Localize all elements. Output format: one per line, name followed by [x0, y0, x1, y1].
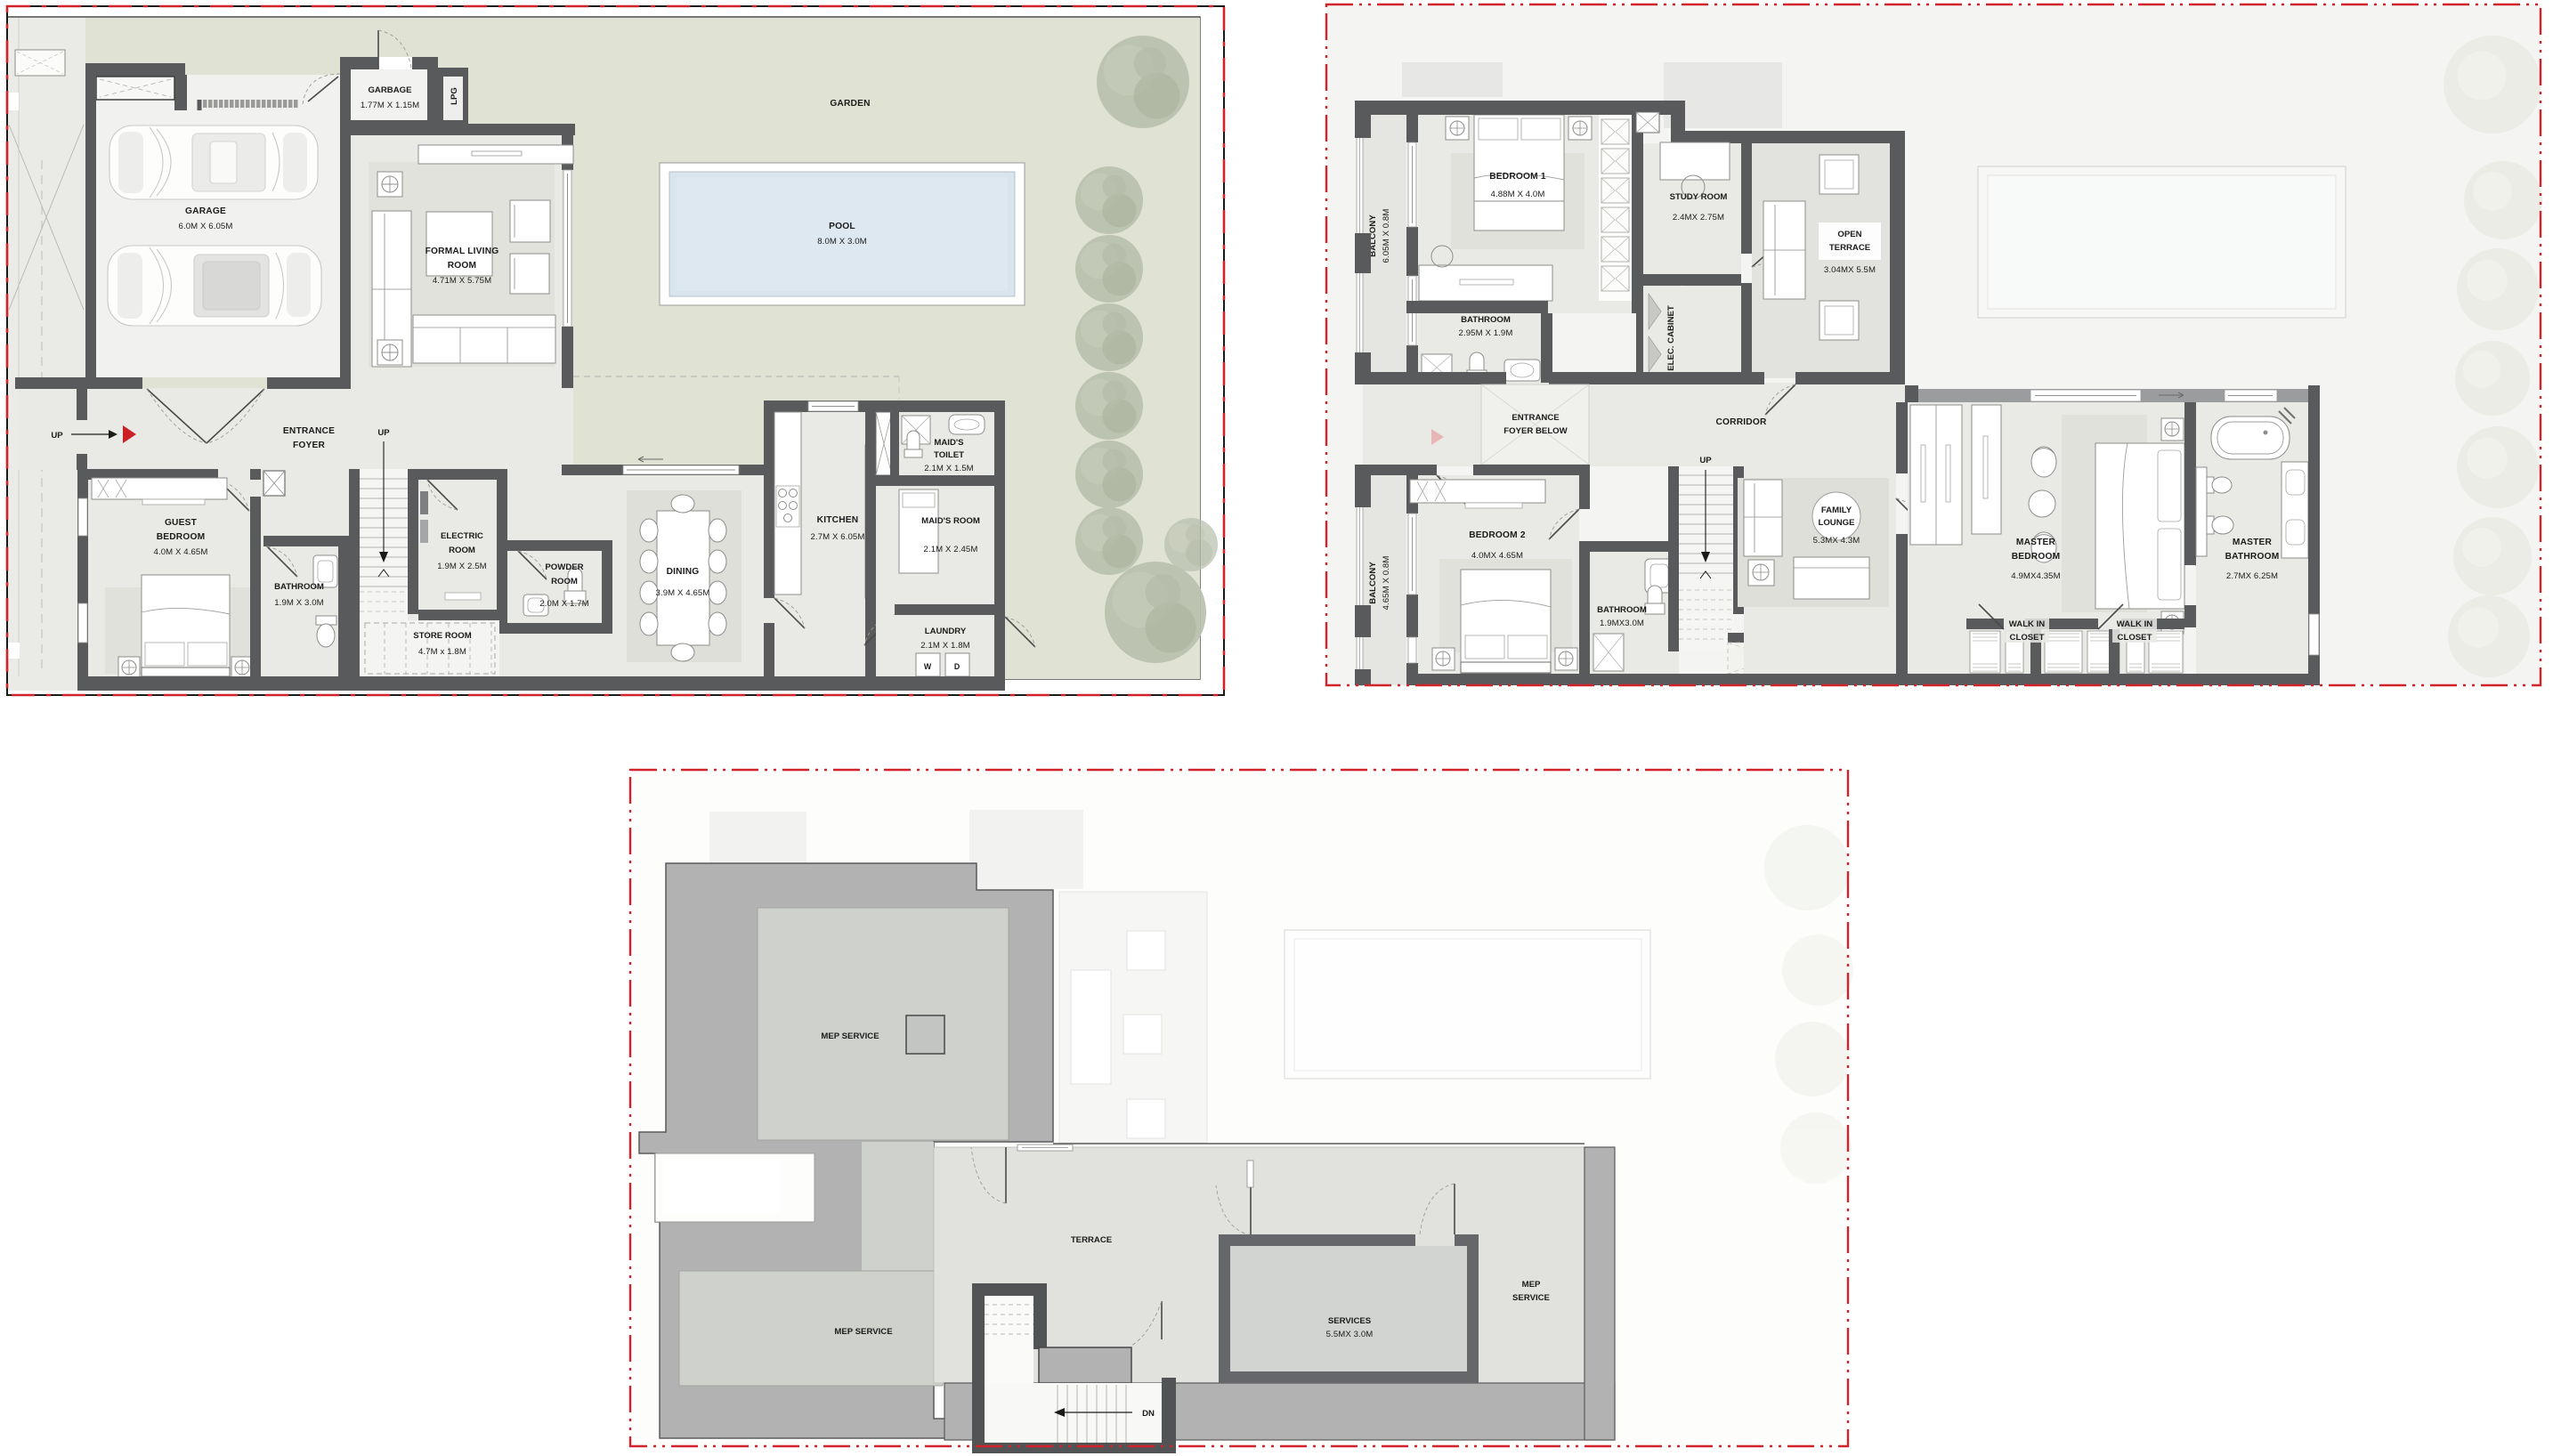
- svg-text:POOL: POOL: [829, 222, 855, 231]
- svg-text:4.7M x 1.8M: 4.7M x 1.8M: [418, 647, 466, 657]
- svg-text:BATHROOM: BATHROOM: [274, 582, 324, 592]
- svg-text:2.7M X 6.05M: 2.7M X 6.05M: [811, 532, 865, 542]
- svg-text:CLOSET: CLOSET: [2118, 633, 2152, 643]
- svg-text:MASTER: MASTER: [2233, 538, 2273, 547]
- svg-text:1.77M X 1.15M: 1.77M X 1.15M: [361, 101, 419, 110]
- svg-text:2.95M X 1.9M: 2.95M X 1.9M: [1459, 328, 1513, 338]
- svg-text:ELECTRIC: ELECTRIC: [441, 531, 483, 541]
- svg-text:WALK IN: WALK IN: [2009, 619, 2046, 629]
- svg-text:4.88M X 4.0M: 4.88M X 4.0M: [1491, 190, 1545, 199]
- svg-text:SERVICES: SERVICES: [1328, 1316, 1372, 1326]
- svg-text:FAMILY: FAMILY: [1821, 506, 1852, 515]
- svg-text:MEP SERVICE: MEP SERVICE: [834, 1327, 893, 1337]
- svg-text:4.0M X 4.65M: 4.0M X 4.65M: [154, 547, 208, 557]
- svg-text:ROOM: ROOM: [449, 546, 475, 555]
- svg-text:3.9M X 4.65M: 3.9M X 4.65M: [656, 588, 710, 598]
- svg-text:2.4MX 2.75M: 2.4MX 2.75M: [1673, 213, 1724, 222]
- svg-text:POWDER: POWDER: [545, 562, 583, 572]
- svg-text:5.3MX 4.3M: 5.3MX 4.3M: [1813, 536, 1860, 546]
- svg-text:MAID'S ROOM: MAID'S ROOM: [921, 516, 980, 526]
- svg-text:TERRACE: TERRACE: [1071, 1235, 1113, 1245]
- svg-text:STORE ROOM: STORE ROOM: [413, 631, 471, 641]
- svg-text:W: W: [924, 662, 932, 671]
- svg-text:DN: DN: [1142, 1409, 1155, 1419]
- svg-text:6.05M X 0.8M: 6.05M X 0.8M: [1382, 209, 1391, 263]
- svg-text:OPEN: OPEN: [1837, 230, 1861, 239]
- svg-text:1.9M X 2.5M: 1.9M X 2.5M: [437, 562, 487, 571]
- svg-text:4.0MX 4.65M: 4.0MX 4.65M: [1471, 551, 1523, 561]
- svg-text:ROOM: ROOM: [448, 261, 477, 271]
- svg-text:D: D: [954, 662, 960, 671]
- svg-text:BATHROOM: BATHROOM: [2225, 552, 2280, 562]
- svg-text:4.71M X 5.75M: 4.71M X 5.75M: [433, 276, 491, 286]
- svg-text:TOILET: TOILET: [934, 450, 964, 460]
- svg-text:5.5MX 3.0M: 5.5MX 3.0M: [1326, 1330, 1374, 1339]
- svg-text:GARBAGE: GARBAGE: [368, 85, 412, 95]
- svg-text:2.1M X 2.45M: 2.1M X 2.45M: [924, 545, 978, 554]
- svg-text:BALCONY: BALCONY: [1368, 562, 1378, 604]
- svg-text:1.9MX3.0M: 1.9MX3.0M: [1600, 619, 1644, 628]
- svg-text:BEDROOM 1: BEDROOM 1: [1489, 172, 1546, 182]
- svg-text:BEDROOM: BEDROOM: [157, 532, 206, 542]
- svg-text:UP: UP: [51, 431, 63, 441]
- svg-text:4.9MX4.35M: 4.9MX4.35M: [2011, 571, 2060, 581]
- svg-text:TERRACE: TERRACE: [1829, 243, 1871, 253]
- svg-text:UP: UP: [1699, 456, 1712, 465]
- svg-text:MAID'S: MAID'S: [934, 438, 964, 448]
- svg-text:ELEC. CABINET: ELEC. CABINET: [1666, 305, 1676, 371]
- svg-text:BATHROOM: BATHROOM: [1461, 315, 1511, 325]
- svg-text:FORMAL LIVING: FORMAL LIVING: [425, 247, 499, 256]
- svg-text:DINING: DINING: [667, 567, 700, 577]
- svg-text:ENTRANCE: ENTRANCE: [283, 426, 335, 436]
- svg-text:3.04MX 5.5M: 3.04MX 5.5M: [1824, 265, 1876, 275]
- svg-text:MEP SERVICE: MEP SERVICE: [821, 1031, 879, 1041]
- svg-text:LAUNDRY: LAUNDRY: [925, 627, 967, 636]
- svg-text:CORRIDOR: CORRIDOR: [1715, 417, 1767, 427]
- svg-text:BATHROOM: BATHROOM: [1597, 605, 1647, 615]
- svg-text:1.9M X 3.0M: 1.9M X 3.0M: [274, 598, 324, 608]
- svg-text:UP: UP: [377, 428, 390, 438]
- svg-text:8.0M X 3.0M: 8.0M X 3.0M: [817, 237, 867, 247]
- svg-text:LOUNGE: LOUNGE: [1818, 518, 1855, 528]
- svg-text:GARAGE: GARAGE: [185, 206, 226, 216]
- svg-text:LPG: LPG: [450, 87, 459, 105]
- svg-text:2.0M X 1.7M: 2.0M X 1.7M: [539, 599, 589, 609]
- svg-text:CLOSET: CLOSET: [2010, 633, 2045, 643]
- svg-text:ENTRANCE: ENTRANCE: [1512, 413, 1560, 423]
- svg-text:FOYER: FOYER: [293, 441, 326, 450]
- svg-text:STUDY ROOM: STUDY ROOM: [1670, 192, 1728, 202]
- svg-text:FOYER BELOW: FOYER BELOW: [1503, 426, 1568, 436]
- svg-text:6.0M X 6.05M: 6.0M X 6.05M: [179, 222, 233, 231]
- svg-text:2.1M X 1.8M: 2.1M X 1.8M: [920, 641, 970, 651]
- svg-text:2.7MX 6.25M: 2.7MX 6.25M: [2226, 571, 2278, 581]
- svg-text:SERVICE: SERVICE: [1512, 1293, 1551, 1303]
- svg-text:GUEST: GUEST: [165, 518, 198, 528]
- svg-text:BEDROOM 2: BEDROOM 2: [1469, 530, 1526, 540]
- svg-text:MEP: MEP: [1522, 1280, 1541, 1290]
- svg-text:GARDEN: GARDEN: [830, 99, 870, 109]
- svg-text:4.65M X 0.8M: 4.65M X 0.8M: [1382, 556, 1391, 611]
- svg-text:2.1M X 1.5M: 2.1M X 1.5M: [924, 464, 974, 473]
- svg-text:BEDROOM: BEDROOM: [2012, 552, 2061, 562]
- svg-text:ROOM: ROOM: [551, 577, 578, 586]
- svg-text:MASTER: MASTER: [2016, 538, 2056, 547]
- svg-text:WALK IN: WALK IN: [2117, 619, 2153, 629]
- svg-text:KITCHEN: KITCHEN: [817, 515, 859, 525]
